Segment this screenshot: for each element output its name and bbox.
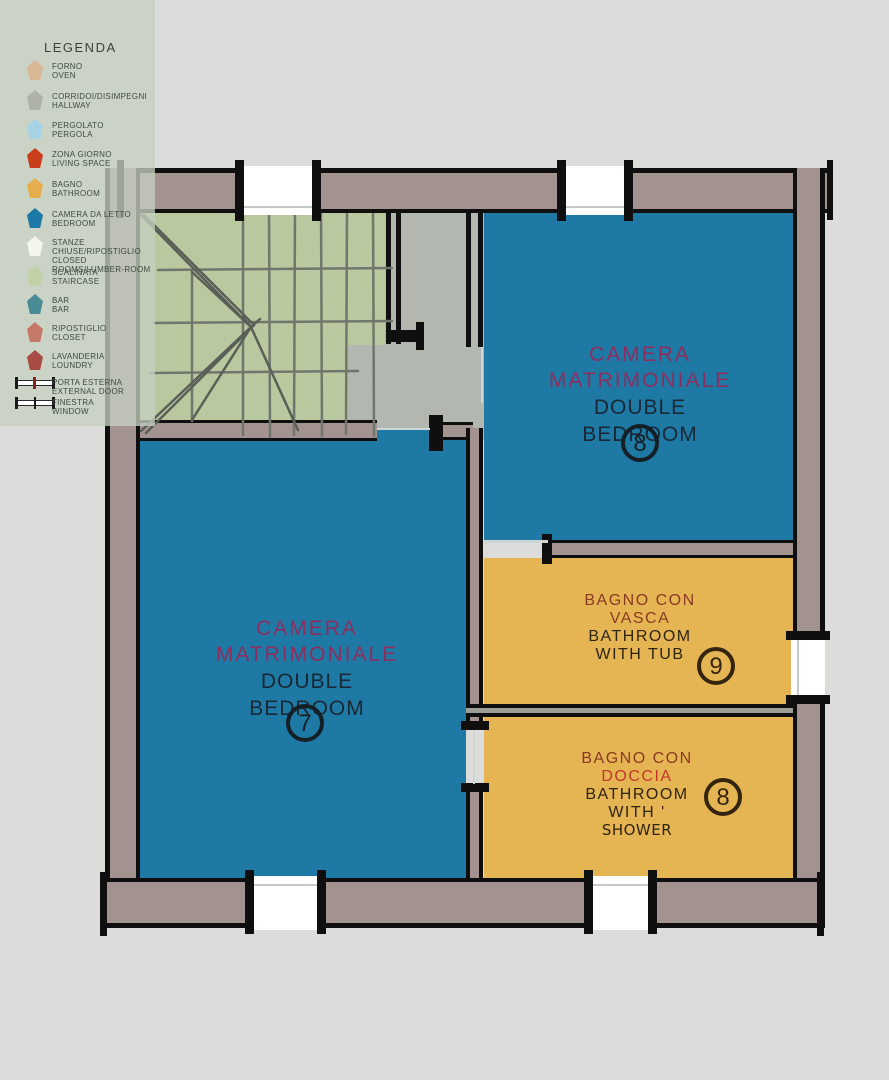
- bedroom8-bath9-door-jamb: [542, 534, 552, 564]
- window-bottom-2-jamb-l: [584, 870, 593, 934]
- legend-label: CLOSET: [52, 333, 106, 342]
- window-bottom-1-line: [251, 884, 321, 886]
- corner-tick-bottom-left: [100, 872, 107, 936]
- outer-wall-top: [120, 168, 830, 213]
- bathroom-8-title-en-1: BATHROOM: [547, 786, 727, 804]
- bathroom-9-title-en-1: BATHROOM: [550, 628, 730, 646]
- legend-label: STANZE CHIUSE/RIPOSTIGLIO: [52, 238, 155, 256]
- legend-item-zona-giorno: ZONA GIORNOLIVING SPACE: [0, 148, 155, 170]
- window-bottom-2-line: [590, 884, 653, 886]
- outer-wall-bottom: [105, 878, 823, 928]
- hallway-wall-stub-right: [466, 211, 483, 347]
- forno-swatch-icon: [27, 60, 43, 80]
- window-right-line: [797, 637, 799, 700]
- legend-label: CORRIDOI/DISIMPEGNI: [52, 92, 147, 101]
- bedroom-7-number-badge: 7: [286, 704, 324, 742]
- bathroom-8-label: BAGNO CON DOCCIA BATHROOM WITH ' SHOWER: [547, 750, 727, 839]
- bedroom7-door-jamb: [429, 415, 443, 451]
- bathroom-8-title-en-3: SHOWER: [547, 822, 727, 839]
- window-top-2-jamb-r: [624, 160, 633, 221]
- living-space-swatch-icon: [27, 148, 43, 168]
- door-opening-hall-bedroom8: [481, 347, 483, 403]
- legend-label: WINDOW: [52, 407, 94, 416]
- window-bottom-1-jamb-r: [317, 870, 326, 934]
- floorplan-canvas: CAMERA MATRIMONIALE DOUBLE BEDROOM 8 CAM…: [0, 0, 889, 1080]
- corner-tick-bottom-right: [817, 872, 824, 936]
- legend-label: BAR: [52, 305, 69, 314]
- legend-item-forno: FORNOOVEN: [0, 60, 155, 82]
- legend-item-bagno: BAGNOBATHROOM: [0, 178, 155, 200]
- legend-label: BATHROOM: [52, 189, 100, 198]
- central-wall-lower: [466, 786, 483, 878]
- legend-label: LIVING SPACE: [52, 159, 112, 168]
- legend-label: FINESTRA: [52, 398, 94, 407]
- legend-label: SCALINATA: [52, 268, 99, 277]
- legend-item-scalinata: SCALINATASTAIRCASE: [0, 266, 155, 288]
- bathroom-9-title-it-2: VASCA: [550, 610, 730, 628]
- legend-label: PERGOLA: [52, 130, 104, 139]
- door-opening-hall-bedroom7: [377, 428, 430, 430]
- legend-label: HALLWAY: [52, 101, 147, 110]
- legend-item-bar: BARBAR: [0, 294, 155, 316]
- central-door-jamb-bottom: [461, 783, 489, 792]
- door-opening-bedroom8-bath9: [484, 540, 548, 543]
- bedroom-8-number-badge: 8: [621, 424, 659, 462]
- legend-item-lavanderia: LAVANDERIALOUNDRY: [0, 350, 155, 372]
- legend-item-camera-da-letto: CAMERA DA LETTOBEDROOM: [0, 208, 155, 230]
- central-door-jamb-top: [461, 721, 489, 730]
- outer-wall-right: [793, 168, 825, 928]
- bathroom-9-title-it-1: BAGNO CON: [550, 592, 730, 610]
- bedroom-swatch-icon: [27, 208, 43, 228]
- corner-tick-top-right: [827, 160, 833, 220]
- central-wall-upper: [466, 428, 483, 728]
- bedroom8-bathroom9-wall: [548, 540, 793, 558]
- legend-item-corridoi: CORRIDOI/DISIMPEGNIHALLWAY: [0, 90, 155, 112]
- hallway-swatch-icon: [27, 90, 43, 110]
- bathrooms-divider-wall: [466, 704, 793, 717]
- legend-label: LAVANDERIA: [52, 352, 105, 361]
- legend-label: OVEN: [52, 71, 82, 80]
- bedroom-8-title-it-1: CAMERA: [540, 342, 740, 368]
- bedroom-7-title-it-1: CAMERA: [207, 616, 407, 642]
- legend-label: BAGNO: [52, 180, 100, 189]
- bathroom-8-title-it-1: BAGNO CON: [547, 750, 727, 768]
- legend-label: LOUNDRY: [52, 361, 105, 370]
- window-top-2-line: [563, 206, 628, 208]
- legend-label: EXTERNAL DOOR: [52, 387, 124, 396]
- legend-label: PORTA ESTERNA: [52, 378, 124, 387]
- window-right-jamb-b: [786, 695, 830, 704]
- closed-rooms-swatch-icon: [27, 236, 43, 256]
- laundry-swatch-icon: [27, 350, 43, 370]
- staircase-sketch: [130, 198, 410, 448]
- window-icon: [15, 397, 55, 409]
- legend-label: BEDROOM: [52, 219, 131, 228]
- legend-label: ZONA GIORNO: [52, 150, 112, 159]
- bathroom-swatch-icon: [27, 178, 43, 198]
- window-bottom-1-jamb-l: [245, 870, 254, 934]
- legend-label: PERGOLATO: [52, 121, 104, 130]
- bathroom-8-number-badge: 8: [704, 778, 742, 816]
- legend-label: RIPOSTIGLIO: [52, 324, 106, 333]
- bedroom-7-title-it-2: MATRIMONIALE: [207, 642, 407, 668]
- window-bottom-2-jamb-r: [648, 870, 657, 934]
- closet-swatch-icon: [27, 322, 43, 342]
- bedroom-8-title-it-2: MATRIMONIALE: [540, 368, 740, 394]
- legend-panel: LEGENDA FORNOOVEN CORRIDOI/DISIMPEGNIHAL…: [0, 0, 155, 426]
- external-door-icon: [15, 377, 55, 389]
- legend-item-ripostiglio: RIPOSTIGLIOCLOSET: [0, 322, 155, 344]
- bathroom-8-title-en-2: WITH ': [547, 804, 727, 822]
- window-top-1-jamb-l: [235, 160, 244, 221]
- legend-item-stanze-chiuse: STANZE CHIUSE/RIPOSTIGLIOCLOSED ROOMS/LU…: [0, 236, 155, 258]
- window-top-1-line: [241, 206, 316, 208]
- legend-title: LEGENDA: [44, 40, 117, 55]
- legend-label: BAR: [52, 296, 69, 305]
- bathroom-8-title-it-2: DOCCIA: [547, 768, 727, 786]
- legend-label: STAIRCASE: [52, 277, 99, 286]
- legend-item-finestra: FINESTRAWINDOW: [0, 396, 155, 418]
- hallway-stub-hook-tick: [416, 322, 424, 350]
- bathroom-9-number-badge: 9: [697, 647, 735, 685]
- legend-label: CAMERA DA LETTO: [52, 210, 131, 219]
- legend-item-pergolato: PERGOLATOPERGOLA: [0, 119, 155, 141]
- window-right-jamb-t: [786, 631, 830, 640]
- legend-label: FORNO: [52, 62, 82, 71]
- staircase-swatch-icon: [27, 266, 43, 286]
- door-opening-bedroom7-bath8: [473, 730, 475, 784]
- window-top-2-jamb-l: [557, 160, 566, 221]
- legend-item-porta-esterna: PORTA ESTERNAEXTERNAL DOOR: [0, 376, 155, 398]
- window-top-1-jamb-r: [312, 160, 321, 221]
- bar-swatch-icon: [27, 294, 43, 314]
- pergola-swatch-icon: [27, 119, 43, 139]
